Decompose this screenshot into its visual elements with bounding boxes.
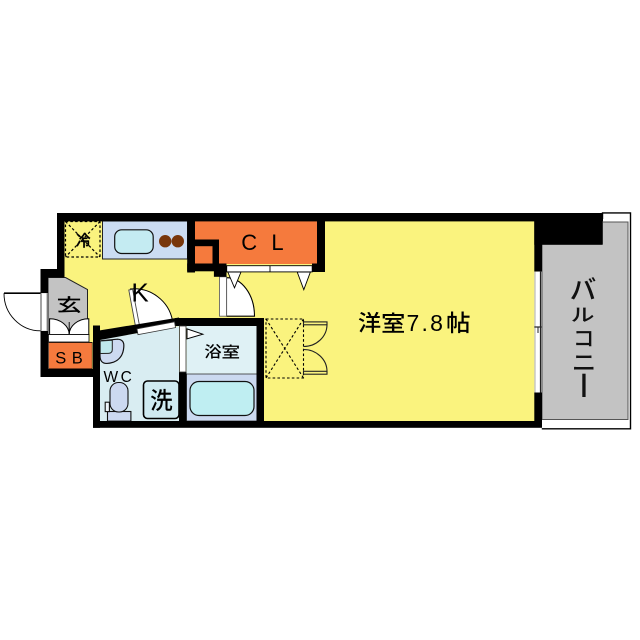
svg-text:C: C (241, 230, 257, 255)
svg-text:7.8: 7.8 (407, 310, 446, 336)
svg-text:L: L (271, 230, 283, 255)
svg-text:K: K (131, 277, 149, 307)
svg-text:B: B (72, 349, 83, 367)
svg-text:S: S (55, 349, 66, 367)
